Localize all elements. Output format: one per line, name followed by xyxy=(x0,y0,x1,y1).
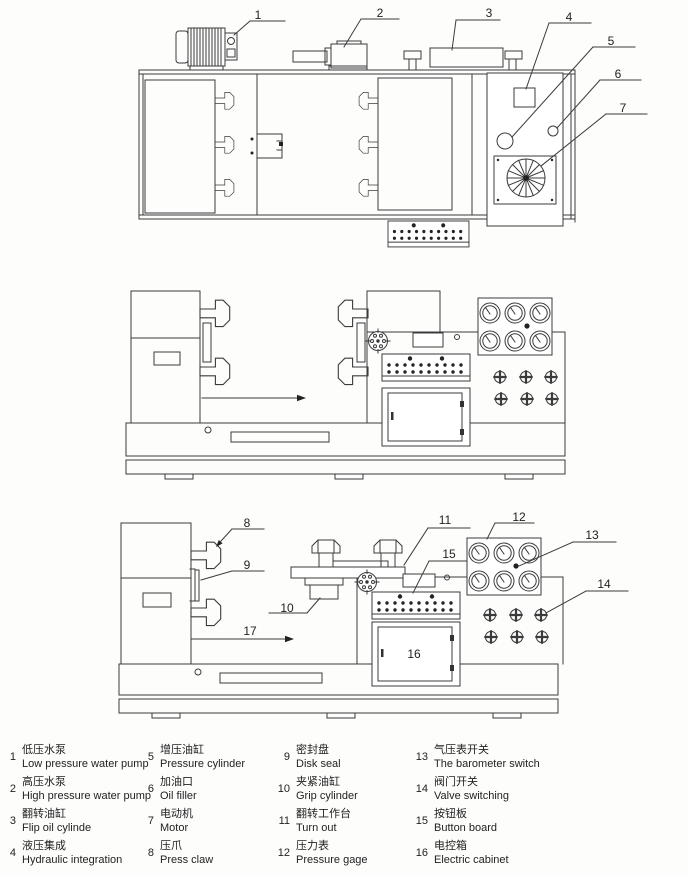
callout-9: 9 xyxy=(244,558,251,572)
legend-num: 3 xyxy=(2,815,16,827)
middle-tank xyxy=(378,78,452,210)
button-board-front xyxy=(382,354,470,381)
legend-en: Press claw xyxy=(160,853,213,867)
legend-num: 10 xyxy=(276,783,290,795)
legend-item: 13气压表开关The barometer switch xyxy=(414,743,540,771)
motor xyxy=(176,28,237,70)
callout-13: 13 xyxy=(585,528,599,542)
legend-num: 11 xyxy=(276,815,290,827)
legend-zh: 密封盘 xyxy=(296,743,341,757)
legend-num: 14 xyxy=(414,783,428,795)
front-view xyxy=(126,291,565,479)
legend-item: 3翻转油缸Flip oil cylinde xyxy=(2,807,151,835)
legend-item: 16电控箱Electric cabinet xyxy=(414,839,540,867)
machine-drawing-page: 1 2 3 4 5 6 7 xyxy=(0,0,688,875)
tower-window xyxy=(154,352,180,365)
legend-en: High pressure water pump xyxy=(22,789,151,803)
legend-zh: 液压集成 xyxy=(22,839,122,853)
legend-num: 5 xyxy=(140,751,154,763)
legend-column-3: 9密封盘Disk seal 10夹紧油缸Grip cylinder 11翻转工作… xyxy=(276,743,368,871)
legend-item: 1低压水泵Low pressure water pump xyxy=(2,743,151,771)
hydraulic-cabinet-top xyxy=(487,73,563,226)
base-pedestal-side xyxy=(119,664,558,718)
callout-11: 11 xyxy=(439,513,452,527)
legend-zh: 翻转油缸 xyxy=(22,807,91,821)
turn-table xyxy=(291,540,405,578)
legend-num: 9 xyxy=(276,751,290,763)
legend-item: 6加油口Oil filler xyxy=(140,775,245,803)
button-board-top xyxy=(388,221,469,247)
legend-item: 15按钮板Button board xyxy=(414,807,540,835)
legend-en: Hydraulic integration xyxy=(22,853,122,867)
legend-zh: 低压水泵 xyxy=(22,743,149,757)
callout-2: 2 xyxy=(377,6,384,20)
panel-lamp xyxy=(455,335,460,340)
valve-grid-side xyxy=(484,609,547,642)
legend-zh: 电动机 xyxy=(160,807,193,821)
legend-zh: 增压油缸 xyxy=(160,743,245,757)
legend-en: Oil filler xyxy=(160,789,197,803)
legend-item: 5增压油缸Pressure cylinder xyxy=(140,743,245,771)
legend-num: 15 xyxy=(414,815,428,827)
top-view: 1 2 3 4 5 6 7 xyxy=(139,6,647,247)
gauge-panel-side xyxy=(467,538,541,595)
flange-wheel-front xyxy=(366,329,390,353)
legend-zh: 压力表 xyxy=(296,839,368,853)
callout-12: 12 xyxy=(512,510,526,524)
legend-num: 6 xyxy=(140,783,154,795)
legend-num: 2 xyxy=(2,783,16,795)
legend-en: The barometer switch xyxy=(434,757,540,771)
callout-7: 7 xyxy=(620,101,627,115)
legend-zh: 阀门开关 xyxy=(434,775,509,789)
legend-num: 4 xyxy=(2,847,16,859)
legend-en: Flip oil cylinde xyxy=(22,821,91,835)
legend-en: Pressure cylinder xyxy=(160,757,245,771)
travel-arrow xyxy=(202,395,306,401)
left-water-tank xyxy=(145,80,215,213)
legend-item: 8压爪Press claw xyxy=(140,839,245,867)
legend-num: 13 xyxy=(414,751,428,763)
legend-en: Pressure gage xyxy=(296,853,368,867)
legend-en: Electric cabinet xyxy=(434,853,509,867)
legend-item: 7电动机Motor xyxy=(140,807,245,835)
callout-6: 6 xyxy=(615,67,622,81)
base-pedestal xyxy=(126,423,565,479)
legend-num: 16 xyxy=(414,847,428,859)
panel-window xyxy=(413,333,443,347)
side-view: 8 9 10 11 12 13 14 15 16 17 xyxy=(119,510,628,718)
legend-en: Turn out xyxy=(296,821,351,835)
legend-num: 8 xyxy=(140,847,154,859)
base-slot xyxy=(231,432,329,442)
callout-14: 14 xyxy=(597,577,611,591)
legend-zh: 夹紧油缸 xyxy=(296,775,358,789)
legend-column-1: 1低压水泵Low pressure water pump 2高压水泵High p… xyxy=(2,743,151,871)
legend-zh: 压爪 xyxy=(160,839,213,853)
legend-zh: 按钮板 xyxy=(434,807,497,821)
callout-8: 8 xyxy=(244,516,251,530)
legend-zh: 气压表开关 xyxy=(434,743,540,757)
electric-cabinet-front xyxy=(382,388,470,446)
legend-item: 10夹紧油缸Grip cylinder xyxy=(276,775,368,803)
legend-en: Valve switching xyxy=(434,789,509,803)
legend-en: Low pressure water pump xyxy=(22,757,149,771)
legend-zh: 高压水泵 xyxy=(22,775,151,789)
callout-10: 10 xyxy=(280,601,294,615)
callout-1: 1 xyxy=(255,8,262,22)
legend-item: 4液压集成Hydraulic integration xyxy=(2,839,151,867)
legend-item: 12压力表Pressure gage xyxy=(276,839,368,867)
tower-window-side xyxy=(143,593,171,607)
legend-en: Disk seal xyxy=(296,757,341,771)
base-slot-side xyxy=(220,673,322,683)
callout-3: 3 xyxy=(486,6,493,20)
flip-oil-cylinder xyxy=(404,48,522,70)
valve-grid-front xyxy=(494,371,557,404)
grip-cylinder xyxy=(305,578,343,599)
callout-17: 17 xyxy=(243,624,257,638)
legend: 1低压水泵Low pressure water pump 2高压水泵High p… xyxy=(0,743,688,873)
seal-rail-right xyxy=(357,323,365,362)
legend-item: 9密封盘Disk seal xyxy=(276,743,368,771)
gauge-panel-front xyxy=(478,298,552,355)
legend-num: 12 xyxy=(276,847,290,859)
seal-rail-left xyxy=(203,323,211,362)
legend-num: 1 xyxy=(2,751,16,763)
legend-column-2: 5增压油缸Pressure cylinder 6加油口Oil filler 7电… xyxy=(140,743,245,871)
high-pressure-pump xyxy=(293,41,367,70)
legend-en: Button board xyxy=(434,821,497,835)
callout-15: 15 xyxy=(442,547,456,561)
top-view-callout-leaders xyxy=(234,19,647,166)
legend-zh: 翻转工作台 xyxy=(296,807,351,821)
callout-16: 16 xyxy=(407,647,421,661)
coupling xyxy=(251,134,284,158)
legend-en: Grip cylinder xyxy=(296,789,358,803)
legend-zh: 电控箱 xyxy=(434,839,509,853)
callout-5: 5 xyxy=(608,34,615,48)
three-view-drawing: 1 2 3 4 5 6 7 xyxy=(0,0,688,738)
legend-zh: 加油口 xyxy=(160,775,197,789)
left-tower xyxy=(131,291,200,423)
legend-en: Motor xyxy=(160,821,193,835)
legend-item: 11翻转工作台Turn out xyxy=(276,807,368,835)
legend-num: 7 xyxy=(140,815,154,827)
callout-4: 4 xyxy=(566,10,573,24)
button-board-side xyxy=(372,592,460,619)
left-tower-side xyxy=(121,523,191,664)
legend-item: 2高压水泵High pressure water pump xyxy=(2,775,151,803)
legend-column-4: 13气压表开关The barometer switch 14阀门开关Valve … xyxy=(414,743,540,871)
legend-item: 14阀门开关Valve switching xyxy=(414,775,540,803)
